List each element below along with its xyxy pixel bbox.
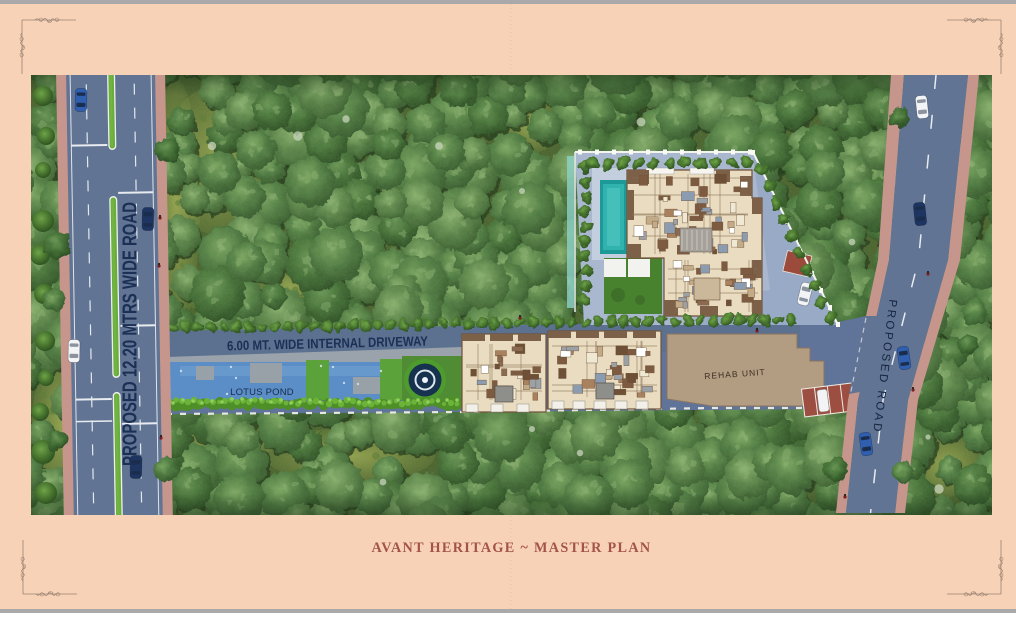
svg-text:PROPOSED 12.20 MTRS WIDE ROAD: PROPOSED 12.20 MTRS WIDE ROAD: [120, 202, 142, 466]
svg-text:LOTUS POND: LOTUS POND: [230, 387, 294, 398]
svg-text:AVANT HERITAGE ~ MASTER PLAN: AVANT HERITAGE ~ MASTER PLAN: [372, 540, 652, 556]
